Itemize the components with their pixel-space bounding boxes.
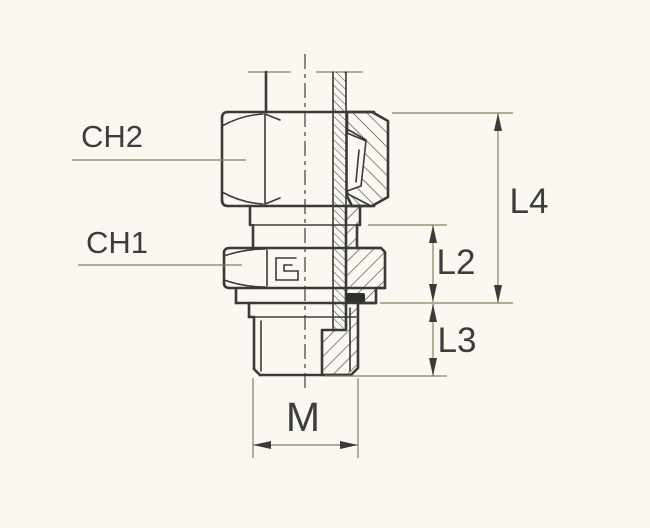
label-ch1: CH1 bbox=[86, 225, 148, 260]
fitting-diagram-svg: CH2 CH1 L4 L2 L3 M bbox=[0, 0, 650, 528]
captive-seal bbox=[346, 293, 365, 303]
label-ch2: CH2 bbox=[81, 119, 143, 154]
label-l3: L3 bbox=[438, 321, 477, 360]
paper-background bbox=[0, 0, 650, 528]
label-l4: L4 bbox=[510, 182, 549, 221]
technical-drawing: CH2 CH1 L4 L2 L3 M bbox=[0, 0, 650, 528]
label-l2: L2 bbox=[437, 243, 476, 282]
label-m: M bbox=[286, 394, 320, 440]
